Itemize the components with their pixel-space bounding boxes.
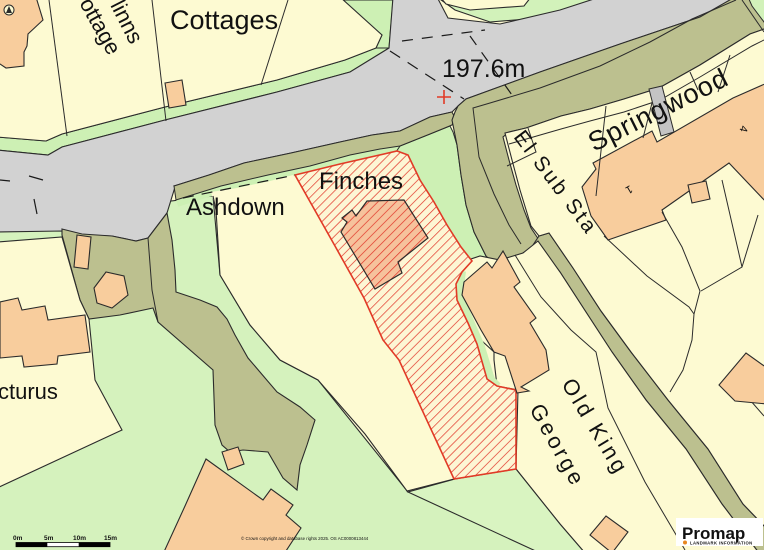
svg-text:cturus: cturus: [0, 379, 58, 404]
svg-text:LANDMARK INFORMATION: LANDMARK INFORMATION: [690, 541, 753, 546]
svg-text:15m: 15m: [104, 535, 117, 542]
svg-text:© Crown copyright and database: © Crown copyright and database rights 20…: [241, 536, 369, 541]
svg-text:5m: 5m: [44, 535, 54, 542]
svg-text:Finches: Finches: [319, 168, 403, 195]
svg-text:0m: 0m: [13, 535, 23, 542]
svg-text:197.6m: 197.6m: [442, 55, 525, 83]
svg-text:10m: 10m: [73, 535, 86, 542]
svg-text:Ashdown: Ashdown: [186, 194, 285, 221]
svg-text:Cottages: Cottages: [170, 5, 278, 35]
